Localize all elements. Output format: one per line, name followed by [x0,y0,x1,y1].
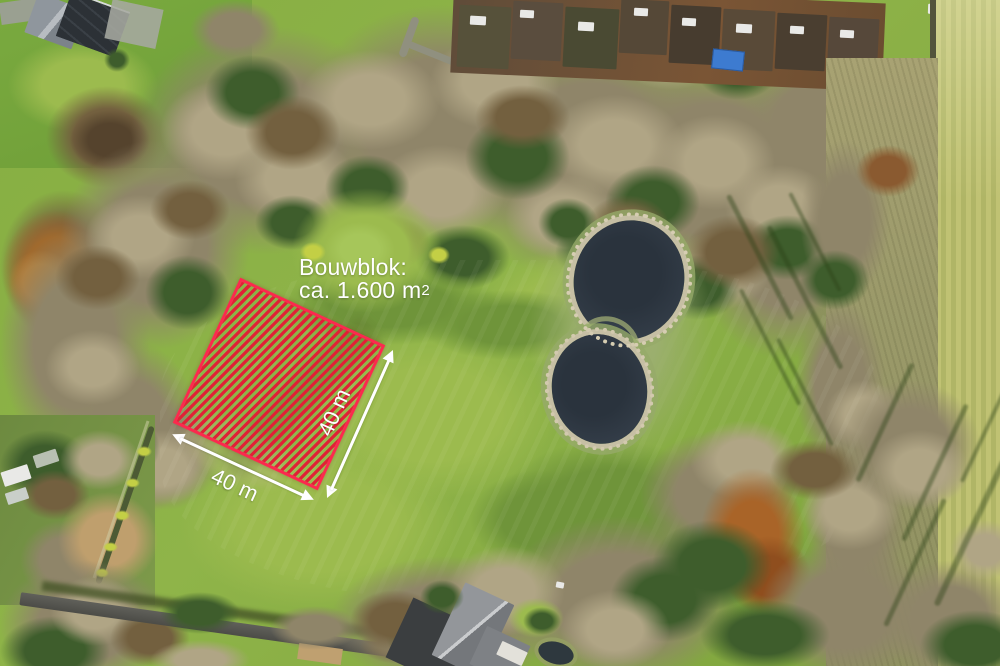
aerial-photo: Bouwblok: ca. 1.600 m2 40 m 40 m [0,0,1000,666]
crop-field-light [936,0,1000,200]
skylight [520,10,534,19]
bare-branches [245,95,340,170]
house-roof [511,1,564,62]
hedge-bush [114,510,130,521]
garden-bush [523,607,561,635]
house-roof [456,5,511,70]
garden-bush [420,580,464,614]
bare-branches [475,85,570,150]
tree-canopy [560,590,670,666]
house-roof [775,13,828,72]
bouwblok-area: ca. 1.600 m2 [299,279,421,302]
bouwblok-area-superscript: 2 [421,279,430,302]
tree-canopy [45,330,140,405]
skylight [790,26,804,35]
bouwblok-area-value: ca. 1.600 m [299,277,421,303]
skylight [470,16,486,26]
scrub-bushes [652,520,772,610]
skylight [634,8,648,17]
bracken-patch [856,145,920,197]
skylight [578,22,594,32]
blue-tarp [711,48,745,71]
house-roof [562,7,619,70]
garden-bush [104,48,130,72]
bare-branches [55,245,140,310]
woodland [190,0,280,60]
skylight [840,30,854,39]
hedge-bush [125,478,140,488]
scrub-bushes [700,600,830,666]
bouwblok-title: Bouwblok: [299,256,421,279]
hedge-bush [136,446,152,457]
hedge-bush [103,542,118,552]
skylight [682,18,696,27]
hedgerow [160,592,240,634]
bouwblok-label: Bouwblok: ca. 1.600 m2 [299,256,421,302]
skylight [736,24,752,34]
shrub [428,246,450,264]
bare-branches [150,180,230,240]
white-object [556,581,565,588]
